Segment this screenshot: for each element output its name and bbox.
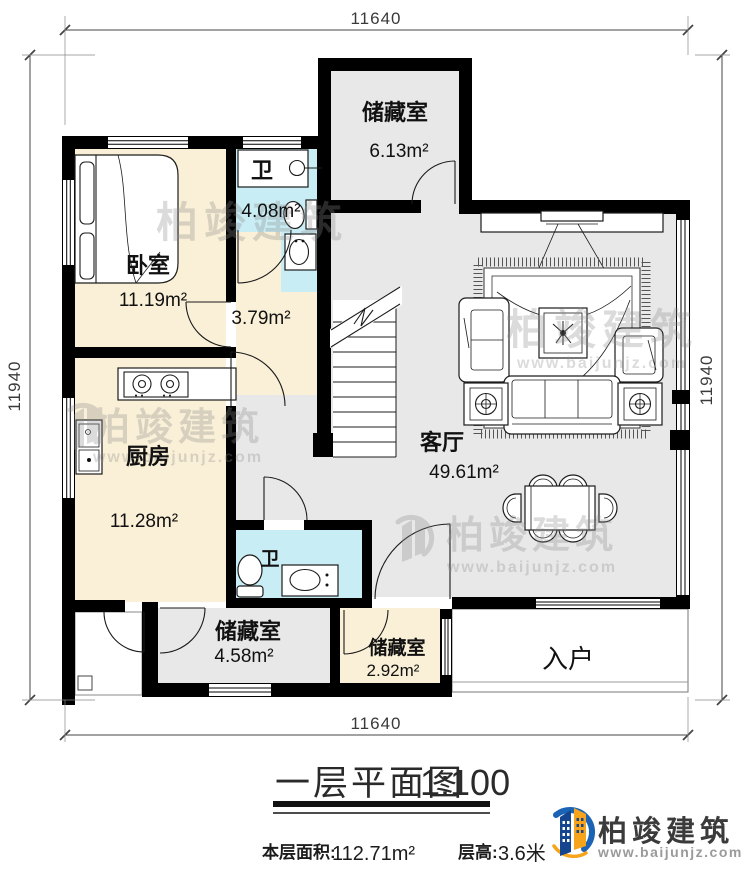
kitchen-counter [118,368,236,400]
window-south-living [536,599,660,608]
floorplan-drawing: 柏竣建筑 柏竣建筑 www.baijunjz.com 柏竣建筑 www.baij… [0,0,750,874]
wall-kitchen-bottom [75,600,125,612]
wall-storage-top [318,58,472,71]
window-bedroom-west [63,180,74,265]
room-name-storage-top: 储藏室 [362,100,428,125]
title-block: 一层平面图 1:100 本层面积: 112.71m² 层高: 3.6米 [262,762,546,865]
wall-east-mullion1 [672,390,690,404]
watermark-text: 柏竣建筑 [506,306,698,353]
floor-area-value: 112.71m² [332,843,415,865]
wall-bath2-bottom [226,598,372,608]
watermark-url: www.baijunjz.com [92,449,263,466]
storage-top-floor [331,71,459,205]
side-table-left [464,383,508,425]
brand-logo-icon [554,808,592,856]
window-east-3 [677,450,689,595]
wall-bedroom-bottom [62,347,236,358]
room-area-storage-mid: 4.58m² [214,646,273,667]
wall-stairs [317,149,331,457]
staircase [330,286,402,457]
wall-bath2-top-l [226,520,264,530]
dim-right: 11940 [697,354,716,405]
room-name-bedroom: 卧室 [126,253,170,278]
room-name-living: 客厅 [420,430,464,455]
wall-bath2-left [226,520,236,608]
toilet2-bowl [238,555,262,585]
wall-south [142,683,452,697]
sofa-left [459,298,509,382]
watermark-c: 柏竣建筑 www.baijunjz.com [506,306,698,372]
room-name-storage-mid: 储藏室 [215,619,281,644]
room-area-bath1: 4.08m² [241,201,300,222]
wall-bath2-right [362,520,372,608]
room-name-entry: 入户 [542,644,594,674]
wall-bath2-top-r [304,520,372,530]
room-name-storage-small: 储藏室 [368,636,425,659]
floor-height-label: 层高: [458,842,498,862]
title-underline-thick [273,801,490,807]
floor-area-label: 本层面积: [262,842,336,862]
window-kitchen-west [63,398,74,498]
window-bath1-north [243,137,301,148]
room-area-living: 49.61m² [429,462,499,483]
plan-scale: 1:100 [420,762,510,803]
floorplan-page: 柏竣建筑 柏竣建筑 www.baijunjz.com 柏竣建筑 www.baij… [0,0,750,874]
window-east-2 [677,404,689,430]
room-area-bedroom: 11.19m² [119,290,187,311]
watermark-url: www.baijunjz.com [516,355,687,372]
window-south [209,684,271,696]
tv [541,211,603,221]
dim-left: 11940 [5,360,24,411]
toilet2-base [237,586,263,597]
wall-stairs-cap [313,433,333,457]
window-storage-small-east [442,619,451,675]
floor-height-value: 3.6米 [498,842,546,865]
room-name-bath2: 卫 [260,549,279,570]
room-area-corridor: 3.79m² [231,308,290,329]
watermark-url: www.baijunjz.com [446,559,617,576]
watermark-text: 柏竣建筑 [446,515,618,557]
room-name-bath1: 卫 [251,158,273,183]
dim-top: 11640 [350,9,401,28]
room-area-kitchen: 11.28m² [110,511,178,532]
storage-door-threshold [421,200,459,213]
brand-logo: 柏竣建筑 www.baijunjz.com [554,808,743,860]
room-area-storage-top: 6.13m² [369,141,428,162]
window-bedroom-north [108,137,188,148]
brand-url: www.baijunjz.com [597,844,743,860]
balcony-floor [75,612,142,695]
wall-storage-div [330,600,340,683]
room-name-kitchen: 厨房 [126,444,170,469]
side-table-right [618,383,662,425]
brand-name: 柏竣建筑 [598,814,734,848]
sofa-bottom [504,376,620,434]
wall-east-mullion2 [670,430,690,450]
watermark-text: 柏竣建筑 [92,407,264,449]
wall-storage-right [459,58,472,214]
dim-bottom: 11640 [350,714,401,733]
room-area-storage-small: 2.92m² [367,661,420,680]
